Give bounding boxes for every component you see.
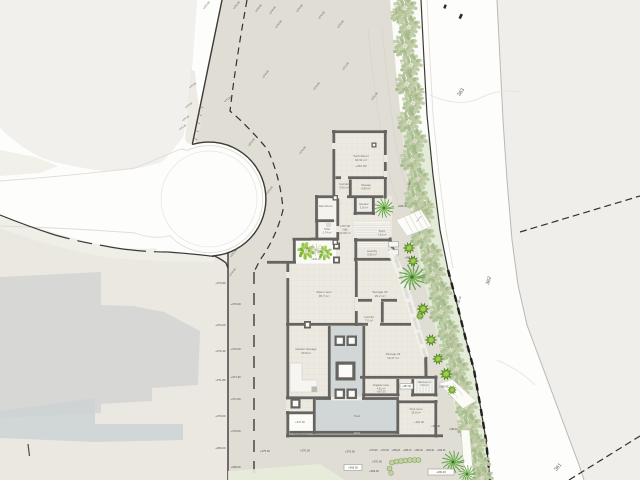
svg-text:+372.40: +372.40: [215, 349, 226, 353]
svg-text:+369.40: +369.40: [449, 428, 458, 431]
svg-text:Elevator3.30 m²: Elevator3.30 m²: [359, 203, 368, 209]
svg-text:+372.00: +372.00: [231, 347, 242, 351]
svg-text:+369.00: +369.00: [231, 465, 242, 469]
svg-text:+366.00: +366.00: [311, 257, 321, 261]
svg-text:+369.00: +369.00: [405, 257, 415, 260]
svg-text:Corridor7.6 m²: Corridor7.6 m²: [364, 315, 374, 323]
svg-text:+371.00: +371.00: [231, 397, 242, 401]
svg-text:+369.00: +369.00: [348, 465, 358, 469]
svg-text:+369.40: +369.40: [403, 450, 412, 452]
svg-text:+371.30: +371.30: [231, 375, 242, 379]
svg-text:+370.00: +370.00: [372, 460, 382, 464]
svg-text:Pool: Pool: [354, 414, 360, 418]
svg-text:Storage 0316.47 m²: Storage 0316.47 m²: [386, 352, 401, 360]
svg-text:Elec.Room: Elec.Room: [319, 204, 333, 208]
svg-text:Infinity: Infinity: [354, 432, 361, 435]
svg-text:+369.40: +369.40: [414, 450, 423, 452]
svg-text:+370.00: +370.00: [295, 420, 305, 424]
svg-text:+370.00: +370.00: [369, 450, 378, 452]
svg-text:Pool: Pool: [344, 364, 349, 366]
svg-text:+362.00: +362.00: [414, 420, 424, 424]
svg-text:+367.00: +367.00: [355, 164, 367, 168]
svg-text:+369.30: +369.30: [437, 450, 446, 452]
svg-text:Corridor3.00 m²: Corridor3.00 m²: [339, 182, 349, 190]
svg-text:Stairs7.52 m²: Stairs7.52 m²: [378, 229, 387, 236]
svg-text:+370.00: +370.00: [300, 449, 310, 453]
svg-text:+374.90: +374.90: [215, 281, 226, 285]
svg-text:+370.00: +370.00: [345, 450, 355, 454]
svg-text:+370.00: +370.00: [215, 414, 226, 418]
svg-text:+369.00: +369.00: [369, 469, 379, 473]
svg-text:+370.00: +370.00: [231, 429, 242, 433]
svg-text:+367.00: +367.00: [402, 385, 412, 388]
svg-text:+375.00: +375.00: [260, 449, 270, 453]
svg-text:Laundry5.60 m²: Laundry5.60 m²: [367, 249, 378, 257]
svg-text:+369.00: +369.00: [392, 450, 401, 452]
svg-text:+369.30: +369.30: [426, 450, 435, 452]
svg-text:+374.00: +374.00: [215, 323, 226, 327]
svg-text:+371.80: +371.80: [215, 378, 226, 382]
svg-text:+369.00: +369.00: [398, 204, 408, 208]
svg-text:+373.00: +373.00: [231, 302, 242, 306]
svg-text:Garden room: Garden room: [295, 433, 308, 436]
svg-text:+370.00: +370.00: [380, 450, 389, 452]
svg-text:+369.00: +369.00: [439, 386, 449, 389]
svg-text:Tech.Room34.61 m²: Tech.Room34.61 m²: [353, 154, 369, 162]
svg-text:+369.00: +369.00: [436, 470, 446, 474]
svg-text:+369.00: +369.00: [215, 446, 226, 450]
svg-text:Storage6.89 m²: Storage6.89 m²: [361, 183, 371, 191]
svg-text:+369.40: +369.40: [431, 425, 440, 428]
